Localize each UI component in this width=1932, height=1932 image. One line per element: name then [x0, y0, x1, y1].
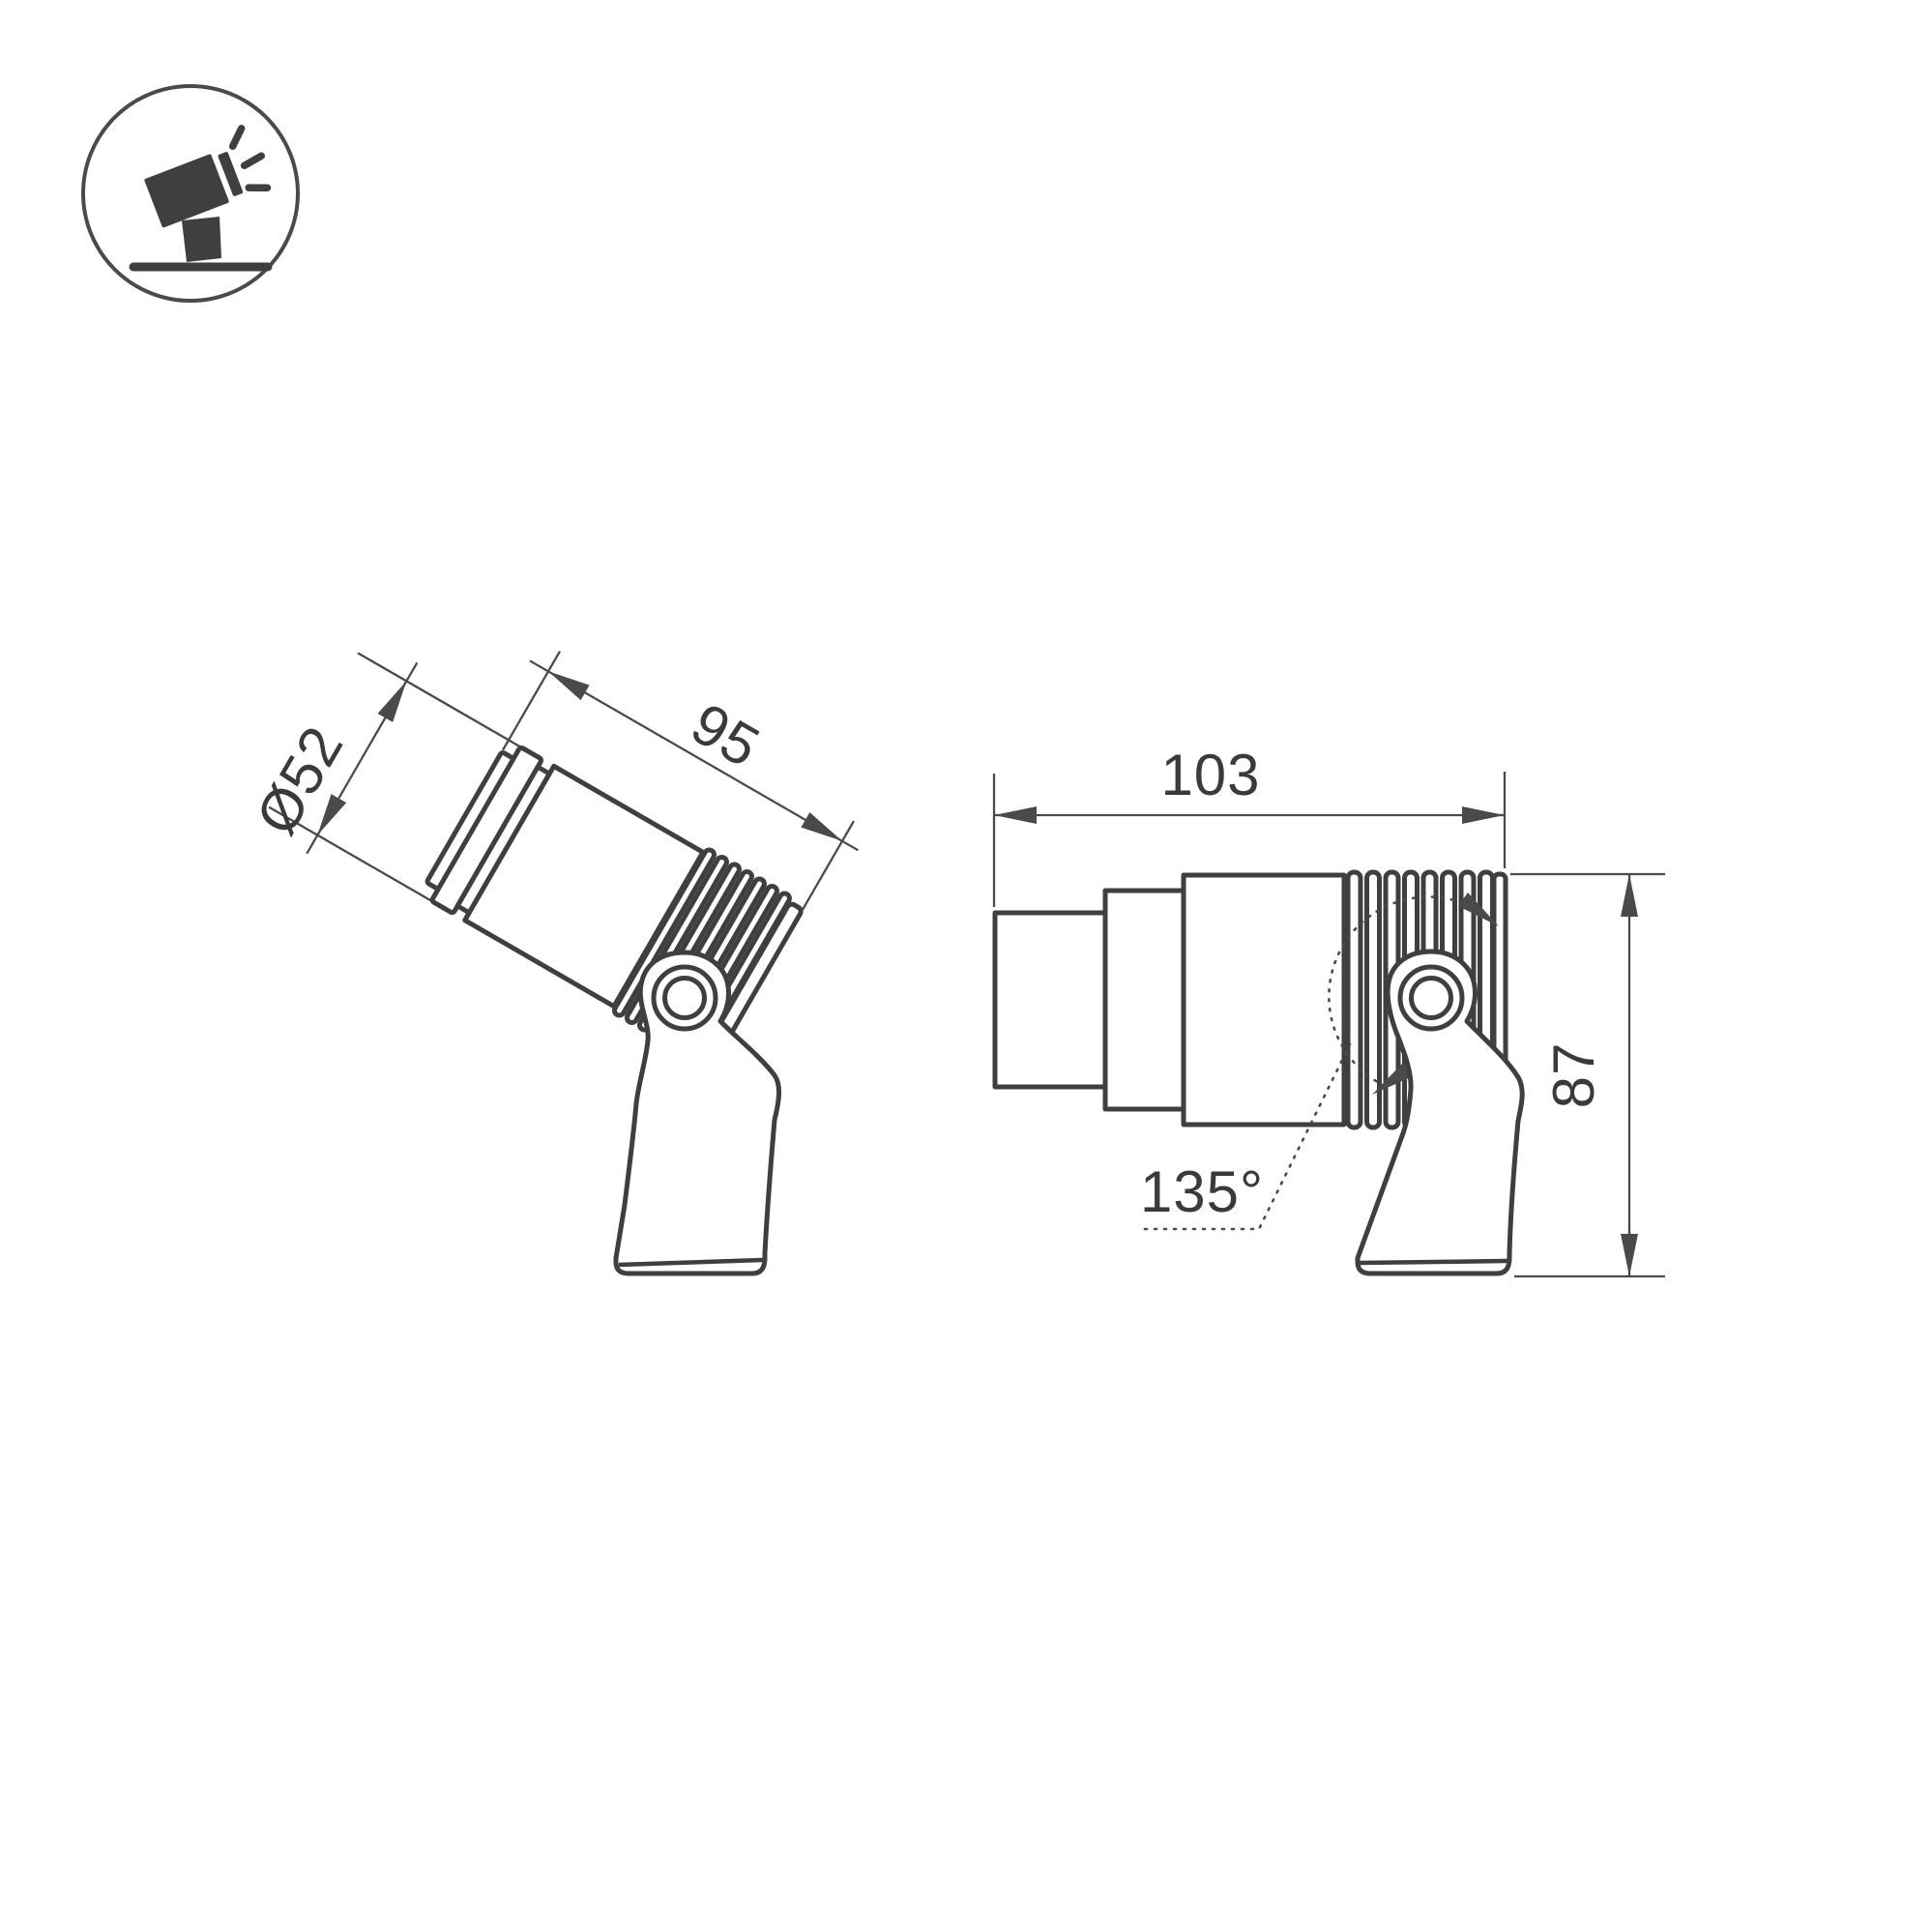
spotlight-dimension-drawing: Ø52 95 — [0, 0, 1932, 1932]
tilted-spotlight-icon — [83, 86, 298, 301]
icon-light-ray-middle — [244, 156, 263, 165]
arrowhead — [1621, 1234, 1638, 1276]
dimension-label-height: 87 — [1541, 1042, 1606, 1109]
technical-drawing-page: Ø52 95 — [0, 0, 1932, 1932]
tilted-lamp: Ø52 95 — [242, 517, 892, 1091]
icon-lamp-head — [139, 126, 273, 228]
dimension-height-87: 87 — [1510, 874, 1665, 1276]
dimension-label-length: 95 — [681, 690, 771, 779]
icon-light-ray-bottom — [249, 182, 267, 194]
icon-light-ray-top — [228, 129, 247, 146]
rear-cap — [995, 913, 1105, 1087]
extension-line — [358, 653, 520, 746]
icon-lamp-body — [144, 154, 229, 228]
lamp-body — [1184, 875, 1344, 1125]
dimension-label-diameter: Ø52 — [244, 716, 356, 845]
icon-lamp-stand — [182, 217, 221, 262]
arrowhead — [994, 806, 1037, 824]
step-ring — [1105, 891, 1184, 1109]
fin — [1348, 872, 1361, 1127]
bracket-base-edge — [1360, 1261, 1508, 1263]
extension-line — [503, 652, 560, 750]
arrowhead — [1462, 806, 1505, 824]
pivot-screw — [665, 979, 705, 1018]
tilted-spotlight-view: Ø52 95 — [242, 517, 892, 1273]
side-spotlight-view: 103 87 135° — [994, 743, 1665, 1276]
pivot-screw — [1412, 979, 1451, 1018]
arrowhead — [1621, 874, 1638, 917]
dimension-label-angle: 135° — [1140, 1159, 1264, 1224]
dimension-label-length: 103 — [1160, 743, 1260, 807]
